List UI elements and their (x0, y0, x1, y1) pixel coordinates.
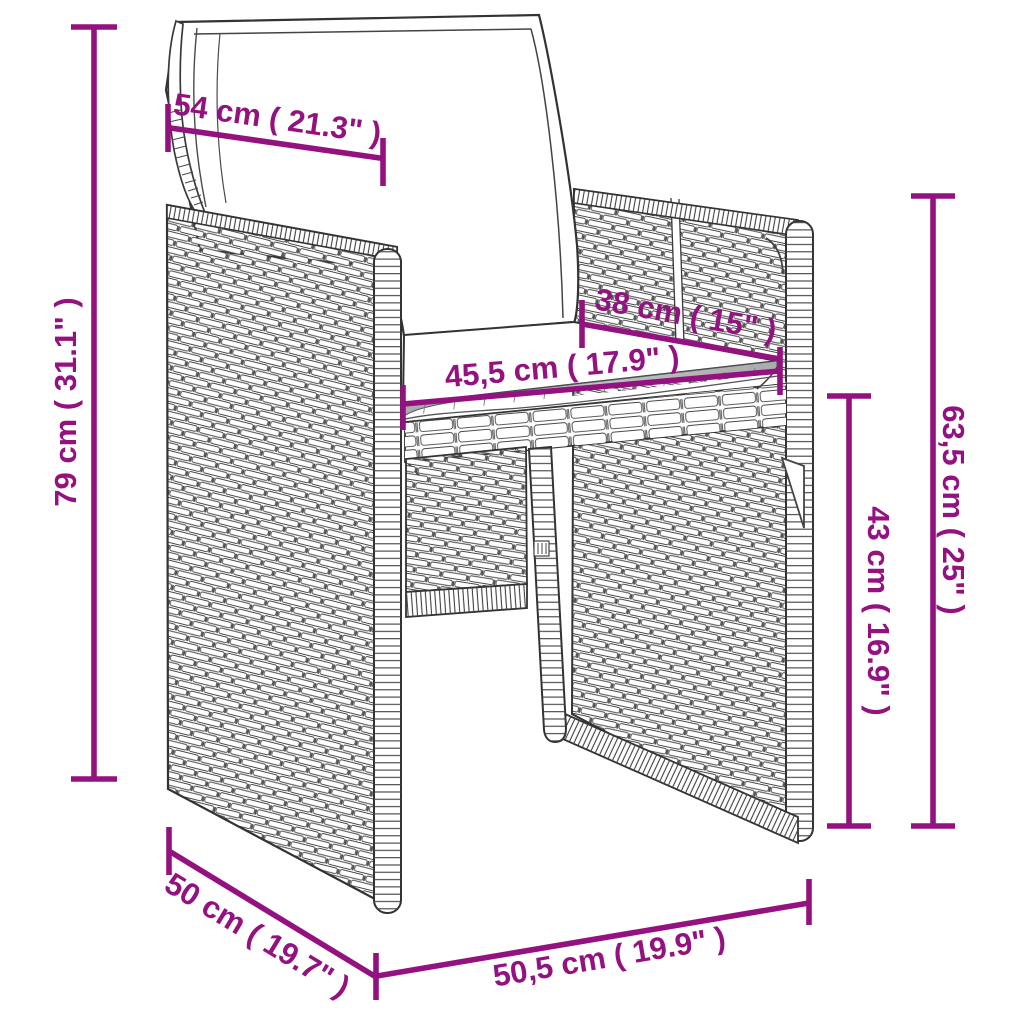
svg-text:63,5 cm ( 25" ): 63,5 cm ( 25" ) (936, 405, 971, 614)
svg-text:43 cm ( 16.9" ): 43 cm ( 16.9" ) (861, 506, 896, 715)
svg-text:79 cm ( 31.1" ): 79 cm ( 31.1" ) (48, 297, 83, 506)
